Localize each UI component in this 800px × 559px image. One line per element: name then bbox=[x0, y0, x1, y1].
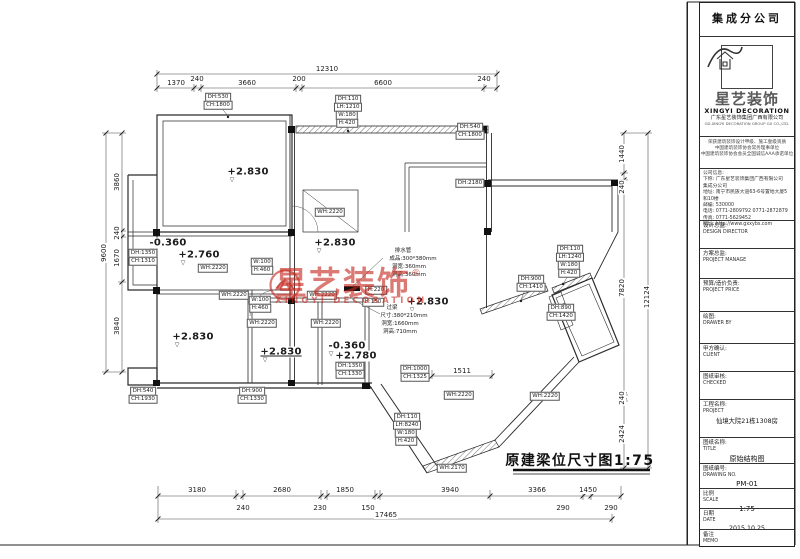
title-block-field: 日期DATE2015.10.25 bbox=[700, 508, 794, 529]
dimension-label: 3940 bbox=[440, 486, 460, 494]
field-label-en: MEMO bbox=[700, 539, 794, 545]
annotation-note: 洞高:710mm bbox=[383, 327, 417, 335]
beam-size-chip: WH:2220 bbox=[311, 319, 341, 328]
beam-size-chip: WH:2220 bbox=[307, 291, 337, 300]
field-label-en: CLIENT bbox=[700, 353, 794, 359]
beam-size-chip: H:220 bbox=[365, 286, 387, 295]
field-label-cn: 图纸编号: bbox=[700, 464, 794, 473]
beam-size-chip: CH:1325 bbox=[401, 373, 430, 382]
beam-size-chip: WH:2220 bbox=[530, 392, 560, 401]
dimension-label: 3366 bbox=[527, 486, 547, 494]
floor-plan-geometry bbox=[0, 0, 800, 559]
dimension-label: 200 bbox=[291, 75, 306, 83]
beam-size-chip: CH:1420 bbox=[547, 312, 576, 321]
field-label-cn: 工程名称: bbox=[700, 400, 794, 409]
beam-size-chip: CH:1330 bbox=[336, 370, 365, 379]
branch-name: 集成分公司 bbox=[700, 3, 794, 35]
field-value: 仙境大院21栋1308房 bbox=[700, 414, 794, 425]
beam-size-chip: CH:1410 bbox=[517, 283, 546, 292]
field-label-cn: 备注 bbox=[700, 530, 794, 539]
dimension-label: 6600 bbox=[373, 79, 393, 87]
dimension-label: 230 bbox=[312, 504, 327, 512]
annotation-note: 过梁 bbox=[386, 303, 397, 311]
dimension-label: 2680 bbox=[272, 486, 292, 494]
dimension-label: 240 bbox=[113, 225, 121, 240]
dimension-label: 240 bbox=[618, 179, 626, 194]
title-block-field: 设计总监:DESIGN DIRECTOR bbox=[700, 220, 794, 248]
elevation-marker-icon: ▽ bbox=[230, 177, 235, 184]
beam-size-chip: H:460 bbox=[251, 266, 273, 275]
beam-size-chip: H:460 bbox=[249, 304, 271, 313]
field-label-cn: 比例 bbox=[700, 489, 794, 498]
dimension-label: 1850 bbox=[335, 486, 355, 494]
title-block-field: 比例SCALE1:75 bbox=[700, 488, 794, 508]
drawing-sheet: { "plan": { "title": "原建梁位尺寸图1:75", "lab… bbox=[0, 0, 800, 559]
title-block-field: 甲方确认:CLIENT bbox=[700, 343, 794, 371]
beam-size-chip: H:150 bbox=[362, 298, 384, 307]
beam-size-chip: CH:1330 bbox=[238, 395, 267, 404]
brand-name-cn: 星艺装饰 bbox=[700, 91, 794, 107]
field-label-cn: 绘图: bbox=[700, 312, 794, 321]
company-info-line: 电话: 0771-2809792 0771-2872879 bbox=[703, 209, 791, 215]
beam-size-chip: DH:2180 bbox=[455, 179, 484, 188]
beam-size-chip: WH:2220 bbox=[315, 208, 345, 217]
beam-size-chip: CH:1800 bbox=[456, 131, 485, 140]
field-label-cn: 预算/造价负责: bbox=[700, 279, 794, 288]
dimension-label: 1670 bbox=[113, 248, 121, 268]
elevation-marker-icon: ▽ bbox=[317, 248, 322, 255]
credentials-text: 荣获建筑装饰设计甲级、施工壹级资质中国建筑装饰协会常务理事单位中国建筑装饰协会会… bbox=[700, 137, 794, 159]
elevation-marker-icon: ▽ bbox=[263, 357, 268, 364]
company-logo-icon bbox=[721, 45, 773, 89]
dimension-label: 1370 bbox=[166, 79, 186, 87]
field-value: PM-01 bbox=[700, 478, 794, 488]
annotation-note: 洞宽:360mm bbox=[392, 262, 426, 270]
title-block-field: 图纸审核:CHECKED bbox=[700, 371, 794, 399]
field-label-cn: 日期 bbox=[700, 509, 794, 518]
annotation-note: 尺寸:380*210mm bbox=[380, 311, 427, 319]
field-label-cn: 甲方确认: bbox=[700, 344, 794, 353]
brand-name-en: XINGYI DECORATION bbox=[700, 107, 794, 115]
field-label-en: CHECKED bbox=[700, 381, 794, 387]
title-block-field: 绘图:DRAWER BY bbox=[700, 311, 794, 343]
dimension-label: 240 bbox=[189, 75, 204, 83]
sheet-frame-line bbox=[687, 2, 688, 545]
title-block: 集成分公司 星艺装饰 XINGYI DECORATION 广东星艺装饰集团广西有… bbox=[699, 2, 795, 547]
beam-size-chip: CH:1930 bbox=[129, 395, 158, 404]
title-block-field: 预算/造价负责:PROJECT PRICE bbox=[700, 278, 794, 311]
credential-line: 中国建筑装饰协会会员全国诚信AAA承诺单位 bbox=[700, 152, 794, 158]
company-name-en: GD.XINGYI DECORATION GROUP GX CO.,LTD. bbox=[700, 121, 794, 126]
company-info-line: 下称: 广东星艺装饰集团广西有限公司 bbox=[703, 177, 791, 183]
dimension-label: 240 bbox=[476, 75, 491, 83]
annotation-note: 洞宽:1660mm bbox=[381, 319, 419, 327]
elevation-marker-icon: ▽ bbox=[329, 351, 334, 358]
field-label-en: PROJECT PRICE bbox=[700, 288, 794, 294]
dimension-label: 17465 bbox=[374, 511, 398, 519]
beam-size-chip: CH:1310 bbox=[129, 257, 158, 266]
field-label-cn: 图纸审核: bbox=[700, 372, 794, 381]
beam-size-chip: CH:1800 bbox=[204, 101, 233, 110]
beam-size-chip: WH:2170 bbox=[437, 464, 467, 473]
dimension-label: 1450 bbox=[578, 486, 598, 494]
elevation-marker-icon: ▽ bbox=[175, 342, 180, 349]
dimension-label: 240 bbox=[618, 390, 626, 405]
beam-size-chip: H:420 bbox=[336, 119, 358, 128]
dimension-label: 3860 bbox=[113, 172, 121, 192]
dimension-label: 290 bbox=[603, 504, 618, 512]
title-block-field: 图纸名称:TITLE原始结构图 bbox=[700, 437, 794, 463]
dimension-label: 7820 bbox=[618, 278, 626, 298]
dimension-label: 9600 bbox=[100, 243, 108, 263]
title-block-field: 工程名称:PROJECT仙境大院21栋1308房 bbox=[700, 399, 794, 437]
field-label-cn: 图纸名称: bbox=[700, 438, 794, 447]
dimension-label: 290 bbox=[555, 504, 570, 512]
dimension-label: 12124 bbox=[643, 285, 651, 309]
beam-size-chip: WH:2220 bbox=[219, 291, 249, 300]
dimension-label: 3180 bbox=[187, 486, 207, 494]
plan-title: 原建梁位尺寸图1:75 bbox=[505, 450, 654, 470]
beam-size-chip: WH:2220 bbox=[444, 391, 474, 400]
dimension-label: 1440 bbox=[618, 144, 626, 164]
beam-size-chip: H:420 bbox=[395, 437, 417, 446]
annotation-note: 排水管 bbox=[395, 246, 412, 254]
title-block-field: 图纸编号:DRAWING NO.PM-01 bbox=[700, 463, 794, 488]
dimension-label: 1511 bbox=[452, 367, 472, 375]
dimension-label: 3840 bbox=[113, 316, 121, 336]
dimension-label: 2424 bbox=[618, 424, 626, 444]
beam-size-chip: WH:2220 bbox=[247, 319, 277, 328]
field-label-cn: 方案总监: bbox=[700, 249, 794, 258]
dimension-label: 3660 bbox=[237, 79, 257, 87]
beam-size-chip: H:420 bbox=[558, 269, 580, 278]
elevation-marker-icon: ▽ bbox=[181, 260, 186, 267]
beam-size-chip: WH:2220 bbox=[198, 264, 228, 273]
annotation-note: 洞高:360mm bbox=[392, 270, 426, 278]
field-label-en: DRAWER BY bbox=[700, 321, 794, 327]
dimension-label: 12310 bbox=[315, 65, 339, 73]
title-block-field: 备注MEMO bbox=[700, 529, 794, 546]
title-block-field: 方案总监:PROJECT MANAGE bbox=[700, 248, 794, 278]
field-label-en: DESIGN DIRECTOR bbox=[700, 230, 794, 236]
field-label-cn: 设计总监: bbox=[700, 221, 794, 230]
field-label-en: PROJECT MANAGE bbox=[700, 258, 794, 264]
annotation-note: 成品:300*380mm bbox=[389, 254, 436, 262]
company-info-line: 地址: 南宁市民族大道63-6号置地大厦5和10楼 bbox=[703, 190, 791, 203]
dimension-label: 240 bbox=[235, 504, 250, 512]
